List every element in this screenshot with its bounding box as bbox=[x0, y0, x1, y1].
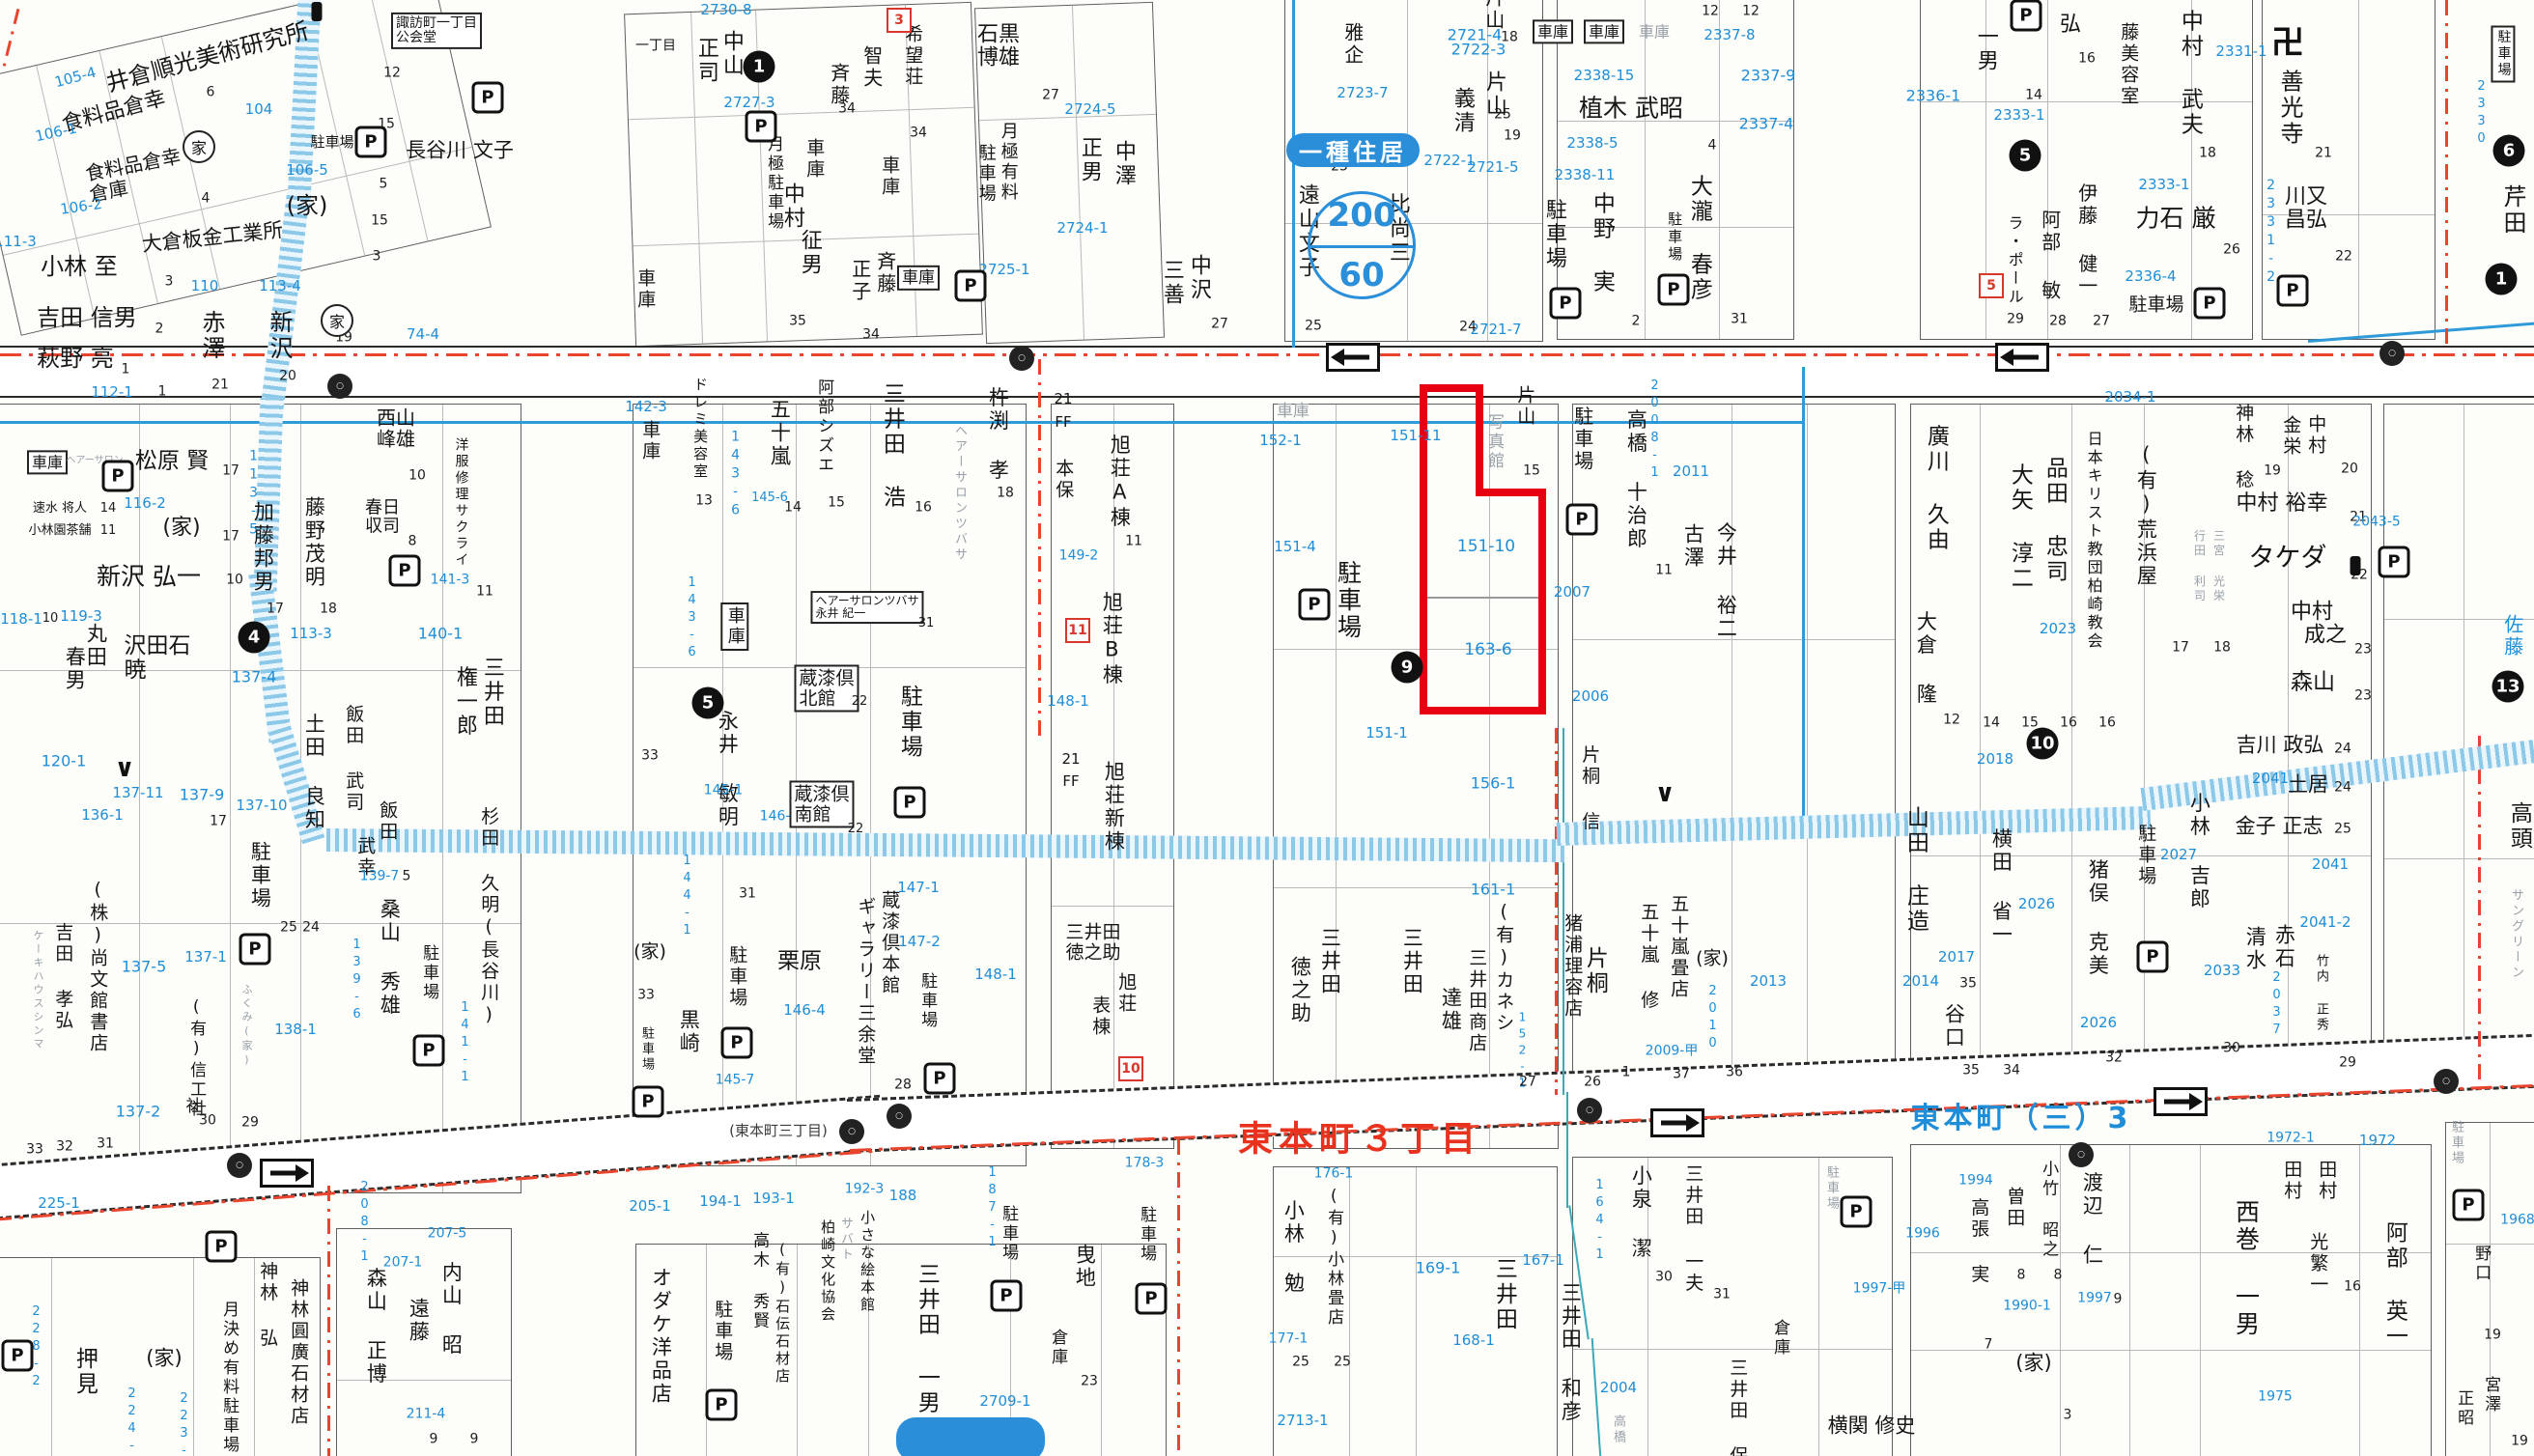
parcel-name: 西巻 一男 bbox=[2234, 1199, 2260, 1338]
lot-number: 2330 bbox=[2474, 79, 2488, 149]
house-number: 11 bbox=[1655, 563, 1673, 577]
lot-number: 2721-7 bbox=[1470, 322, 1521, 337]
lot-number: 2727-3 bbox=[723, 95, 774, 110]
parking-icon: P bbox=[355, 126, 387, 158]
house-number: 15 bbox=[371, 213, 388, 228]
house-number: 12 bbox=[1742, 4, 1760, 18]
parcel-name: 中村 bbox=[2306, 414, 2326, 457]
lot-number: 208-1 bbox=[357, 1180, 371, 1267]
parcel-name: 中野 実 bbox=[1590, 192, 1614, 295]
cadastral-map-canvas[interactable]: 井倉順光美術研究所食料品倉幸6食料品倉幸 倉庫4大倉板金工業所小林 至3吉田 信… bbox=[0, 0, 2534, 1456]
parcel-name: 神林圓廣石材店 bbox=[289, 1278, 309, 1427]
house-number: 10 bbox=[42, 612, 59, 626]
parcel-name: 曳地 bbox=[1074, 1244, 1096, 1290]
lot-number: 1997-甲 bbox=[1853, 1281, 1906, 1296]
lot-number: 2004 bbox=[1600, 1380, 1637, 1395]
lot-number: 2721-4 bbox=[1448, 26, 1503, 42]
house-number: 16 bbox=[2060, 715, 2077, 730]
parcel-name: 加藤邦男 bbox=[252, 501, 274, 594]
lot-number: 143-6 bbox=[685, 575, 698, 662]
house-number: 31 bbox=[1731, 312, 1748, 326]
parcel-line bbox=[337, 1380, 512, 1381]
parcel-name: ラ・ポール bbox=[2006, 215, 2022, 307]
house-number: 30 bbox=[2223, 1041, 2240, 1055]
parcel-name: 三井田 和彦 bbox=[1560, 1282, 1582, 1424]
house-number: 16 bbox=[2078, 51, 2096, 66]
house-number: 13 bbox=[695, 493, 713, 508]
lot-number: 156-1 bbox=[1471, 774, 1516, 791]
house-number: 25 bbox=[1334, 1355, 1351, 1369]
parking-icon: P bbox=[746, 111, 777, 143]
circled-number-icon: 5 bbox=[2010, 140, 2041, 172]
lot-number: 151-1 bbox=[1366, 725, 1408, 741]
boundary-line bbox=[1177, 1139, 1180, 1456]
parcel-name: 車庫 bbox=[1639, 23, 1670, 40]
parcel-name: 21 bbox=[1054, 391, 1072, 406]
parcel-name: 三井田 一男 bbox=[915, 1263, 939, 1416]
parcel-line bbox=[1349, 1167, 1350, 1456]
house-number: 14 bbox=[100, 502, 117, 516]
house-number: 27 bbox=[1519, 1075, 1536, 1089]
parcel-name: 正男 bbox=[1078, 136, 1101, 184]
house-number: 34 bbox=[910, 126, 927, 140]
house-number: 29 bbox=[241, 1115, 259, 1130]
house-number: 14 bbox=[1983, 715, 2000, 730]
parcel-line bbox=[0, 923, 521, 924]
route-marker-icon: ○ bbox=[327, 374, 352, 399]
parcel-line bbox=[2060, 1145, 2061, 1456]
parcel-name: 駐車場 bbox=[976, 144, 995, 205]
lot-number: 138-1 bbox=[274, 1022, 317, 1037]
parcel-name: 表棟 bbox=[1090, 995, 1111, 1038]
parcel-line bbox=[1101, 1245, 1102, 1456]
house-number: 26 bbox=[2223, 242, 2240, 257]
house-number: 21 bbox=[2315, 146, 2332, 160]
parcel-name: ヘアーサロンツバサ 永井 紀一 bbox=[810, 591, 923, 624]
parcel-name: 土田 良知 bbox=[303, 714, 325, 832]
lot-number: 142-3 bbox=[625, 399, 667, 414]
parcel-line bbox=[1274, 649, 1559, 650]
parcel-name: 伊藤 健一 bbox=[2075, 183, 2097, 298]
house-number: 3 bbox=[165, 274, 174, 289]
parcel-name: (有)小林畳店 bbox=[1325, 1187, 1342, 1328]
boundary-line bbox=[3, 9, 20, 68]
parcel-name: 五十嵐 bbox=[769, 399, 791, 468]
street-name: 東本町（三）3 bbox=[1911, 1104, 2132, 1134]
parcel-name: 長谷川 文子 bbox=[406, 140, 514, 162]
lot-number: 211-4 bbox=[407, 1407, 446, 1421]
lot-number: 2041 bbox=[2312, 856, 2349, 872]
lot-number: 2033 bbox=[2204, 963, 2240, 978]
parcel-name: 沢田石 暁 bbox=[125, 634, 191, 683]
parcel-name: 廣川 久由 bbox=[1924, 425, 1948, 553]
house-number: 10 bbox=[408, 468, 426, 483]
house-number: 18 bbox=[2213, 640, 2231, 655]
parcel-name: 中村 成之 bbox=[2291, 601, 2347, 647]
lot-number: 144-1 bbox=[680, 854, 693, 940]
route-marker-icon: ○ bbox=[1577, 1098, 1602, 1123]
house-number: 7 bbox=[1985, 1337, 1993, 1352]
parcel-name: 渡辺 仁 bbox=[2081, 1172, 2103, 1268]
parcel-name: 車庫 bbox=[880, 155, 900, 198]
parcel-name: 車庫 bbox=[27, 450, 68, 474]
parcel-line bbox=[1818, 1158, 1819, 1456]
parcel-name: 三善 bbox=[1160, 259, 1183, 307]
lot-number: 2336-1 bbox=[1906, 87, 1961, 103]
house-number: 11 bbox=[100, 524, 117, 538]
house-number: 8 bbox=[2054, 1268, 2063, 1282]
house-number: 11 bbox=[1125, 534, 1142, 548]
arrow-head bbox=[2189, 1093, 2203, 1110]
lot-number: 137-11 bbox=[112, 785, 163, 800]
house-number: 20 bbox=[279, 369, 296, 383]
lot-number: 2014 bbox=[1902, 973, 1939, 989]
parcel-name: 大矢 淳二 bbox=[2008, 463, 2032, 592]
parcel-name: 竹内 正秀 bbox=[2314, 954, 2327, 1033]
house-number: 12 bbox=[383, 66, 401, 80]
parcel-name: 金子 正志 bbox=[2236, 816, 2323, 838]
house-circle-icon: 家 bbox=[183, 130, 215, 163]
parcel-line bbox=[230, 405, 231, 1193]
lot-number: 136-1 bbox=[81, 807, 124, 823]
lot-number: 151-4 bbox=[1274, 539, 1316, 554]
parcel-name: 萩野 亮 bbox=[37, 347, 114, 372]
parcel-name: 希望荘 bbox=[903, 24, 923, 88]
parcel-name: 押見 bbox=[72, 1347, 97, 1397]
parking-icon: P bbox=[1550, 288, 1582, 320]
parcel-name: 正子 bbox=[849, 259, 870, 303]
house-number: 17 bbox=[2172, 640, 2189, 655]
parcel-name: 藤野茂明 bbox=[303, 496, 325, 589]
parcel-name: 中澤 bbox=[1112, 140, 1135, 188]
lot-number: 148-1 bbox=[974, 966, 1017, 982]
route-marker-icon: ○ bbox=[2379, 341, 2405, 366]
route-marker-icon: ○ bbox=[2069, 1142, 2094, 1167]
lot-number: 2724-1 bbox=[1056, 220, 1108, 236]
street-name: 東本町３丁目 bbox=[1238, 1122, 1481, 1160]
parcel-name: 車庫 bbox=[897, 266, 940, 291]
parcel-name: 遠藤 bbox=[408, 1298, 430, 1344]
house-number: 27 bbox=[1211, 317, 1228, 331]
parcel-name: 品田 忠司 bbox=[2042, 457, 2067, 585]
parcel-name: 月決め有料駐車場 bbox=[220, 1301, 238, 1455]
boundary-line bbox=[327, 1186, 330, 1456]
house-number: 36 bbox=[1726, 1065, 1743, 1079]
house-number: 16 bbox=[915, 500, 932, 515]
parking-icon: P bbox=[472, 82, 504, 114]
parcel-name: 松原 賢 bbox=[135, 450, 209, 474]
house-number: 29 bbox=[2339, 1055, 2356, 1070]
house-number: 5 bbox=[380, 177, 388, 191]
parking-icon: P bbox=[389, 555, 421, 587]
lot-number: 137-5 bbox=[122, 958, 167, 974]
house-number: 9 bbox=[2114, 1292, 2123, 1306]
house-number: 20 bbox=[2341, 462, 2358, 476]
parcel-name: オダケ洋品店 bbox=[650, 1267, 672, 1406]
house-number: 16 bbox=[2344, 1279, 2361, 1294]
one-way-arrow-icon bbox=[1995, 343, 2049, 372]
parcel-name: 清水 bbox=[2244, 926, 2267, 972]
house-number: 34 bbox=[838, 101, 856, 116]
parcel-name: 小林 至 bbox=[41, 255, 118, 280]
parcel-name: 山田 庄造 bbox=[1903, 806, 1928, 935]
house-number: 17 bbox=[222, 529, 239, 544]
parcel-name: 駐車場 bbox=[2136, 824, 2156, 887]
lot-number: 116-2 bbox=[124, 495, 166, 511]
parcel-name: 駐車場 bbox=[2128, 295, 2183, 316]
parking-icon: P bbox=[239, 934, 271, 966]
parcel-name: (家) bbox=[2015, 1353, 2051, 1375]
parcel-name: 大倉 隆 bbox=[1915, 611, 1937, 707]
lot-number: 151-10 bbox=[1457, 538, 1515, 555]
lot-number: 207-1 bbox=[383, 1255, 423, 1270]
parcel-name: 片山 bbox=[1482, 70, 1506, 119]
circled-number-icon: 6 bbox=[2493, 135, 2525, 167]
parcel-name: 旭荘A棟 bbox=[1109, 434, 1131, 530]
parcel-name: 駐車場 bbox=[1571, 406, 1592, 473]
house-number: 26 bbox=[1584, 1075, 1601, 1089]
parcel-name: 権一郎 bbox=[453, 666, 476, 739]
house-number: 19 bbox=[1504, 128, 1521, 143]
parcel-name: (株)尚文館書店 bbox=[88, 879, 108, 1054]
house-number: 10 bbox=[226, 573, 243, 587]
parcel-line bbox=[2129, 1145, 2130, 1456]
parcel-name: 一男 bbox=[1974, 25, 1997, 73]
parking-icon: P bbox=[721, 1027, 753, 1059]
arrow-head bbox=[1686, 1114, 1700, 1132]
parcel-name: 五十嵐 修 bbox=[1639, 903, 1659, 1012]
parcel-name: 森山 正博 bbox=[365, 1268, 387, 1386]
parcel-name: 駐車場 bbox=[2491, 26, 2515, 83]
parcel-name: 吉田 信男 bbox=[37, 306, 137, 331]
house-number: 9 bbox=[470, 1432, 479, 1446]
lot-number: 178-3 bbox=[1125, 1156, 1165, 1170]
red-number-icon: 5 bbox=[1979, 273, 2004, 298]
parcel-name: 小林園茶舗 bbox=[28, 524, 91, 538]
parcel-name: 三井田 bbox=[1492, 1257, 1516, 1332]
parcel-name: 片桐 信 bbox=[1580, 745, 1600, 833]
house-number: 16 bbox=[2098, 715, 2116, 730]
parcel-name: 飯田 bbox=[378, 800, 398, 843]
parcel-name: 片山 bbox=[1515, 385, 1535, 428]
house-number: 25 bbox=[280, 920, 297, 935]
lot-number: 146-4 bbox=[783, 1002, 826, 1018]
parcel-name: 中村 bbox=[780, 182, 803, 231]
house-number: 19 bbox=[2511, 1434, 2528, 1448]
parcel-name: 飯田 武司 bbox=[344, 705, 364, 814]
parcel-name: 三井田 徳之助 bbox=[1065, 922, 1120, 962]
parcel-name: 智夫 bbox=[860, 45, 882, 90]
utility-line bbox=[1423, 597, 1542, 599]
house-number: 23 bbox=[2354, 688, 2372, 703]
house-number: 23 bbox=[1081, 1374, 1098, 1388]
red-number-icon: 10 bbox=[1118, 1056, 1143, 1081]
parcel-name: 旭荘 bbox=[1116, 972, 1137, 1015]
lot-number: 佐藤 bbox=[2501, 614, 2522, 658]
parcel-name: 三井田 bbox=[1401, 927, 1423, 996]
house-circle-icon: 家 bbox=[321, 304, 353, 337]
parcel-name: 車庫 bbox=[640, 420, 661, 462]
parcel-name: 義清 bbox=[1450, 87, 1474, 135]
parcel-name: サングリーン bbox=[2509, 888, 2522, 981]
lot-number: 1968 bbox=[2500, 1213, 2534, 1227]
parcel-name: ギャラリー三余堂 bbox=[856, 897, 876, 1067]
lot-number: 2037 bbox=[2269, 970, 2283, 1040]
parcel-name: 月極有料 bbox=[999, 122, 1017, 203]
parcel-line bbox=[2384, 858, 2534, 859]
parcel-line bbox=[2464, 405, 2464, 1079]
one-way-arrow-icon bbox=[1326, 343, 1380, 372]
parcel-line bbox=[1573, 1349, 1893, 1350]
lot-number: 139-7 bbox=[360, 869, 400, 883]
lot-number: 188 bbox=[889, 1188, 917, 1203]
lot-number: 1975 bbox=[2258, 1389, 2293, 1404]
parcel-name: 古澤 bbox=[1682, 523, 1704, 570]
parking-icon: P bbox=[1566, 504, 1598, 536]
lot-number: 225-1 bbox=[38, 1195, 80, 1211]
zoning-ratio-divider bbox=[1309, 245, 1415, 248]
house-number: 30 bbox=[1655, 1270, 1673, 1284]
lot-number: 143-6 bbox=[727, 430, 742, 521]
parcel-name: 藤美容室 bbox=[2119, 22, 2139, 107]
lot-number: 74-4 bbox=[407, 326, 439, 342]
arrow-head bbox=[1331, 349, 1344, 366]
utility-line bbox=[1292, 0, 1295, 348]
lot-number: 176-1 bbox=[1314, 1166, 1354, 1181]
house-number: 25 bbox=[2334, 822, 2351, 836]
parcel-name: 駐車場 bbox=[1824, 1165, 1838, 1212]
parcel-name: 金栄 bbox=[2281, 415, 2301, 458]
house-number: 6 bbox=[207, 85, 215, 99]
lot-number: 168-1 bbox=[1452, 1332, 1495, 1348]
lot-number: 118-1 bbox=[0, 611, 42, 627]
parking-icon: P bbox=[2, 1340, 34, 1372]
parcel-name: ふくみ(家) bbox=[240, 984, 252, 1069]
parcel-name: 宮澤 bbox=[2482, 1376, 2499, 1414]
parcel-name: FF bbox=[1055, 414, 1071, 430]
house-number: 14 bbox=[784, 500, 802, 515]
house-number: 2 bbox=[155, 322, 164, 336]
parcel-name: 谷口 bbox=[1943, 1003, 1965, 1050]
house-number: 8 bbox=[408, 534, 417, 548]
parking-icon: P bbox=[894, 787, 926, 819]
lot-number: 2023 bbox=[2040, 621, 2076, 636]
parcel-line bbox=[51, 1258, 52, 1456]
parcel-name: 高張 実 bbox=[1969, 1198, 1989, 1286]
house-number: 8 bbox=[2017, 1268, 2026, 1282]
parking-icon: P bbox=[924, 1063, 956, 1095]
lot-number: 2709-1 bbox=[979, 1393, 1030, 1409]
lot-number: 167-1 bbox=[1522, 1252, 1564, 1268]
parcel-name: 駐車場 bbox=[639, 1026, 653, 1073]
parcel-name: 曽田 bbox=[2005, 1187, 2025, 1229]
lot-number: 112-1 bbox=[91, 384, 133, 400]
lot-number: 2338-11 bbox=[1555, 167, 1616, 182]
parcel-name: 三井田 浩 bbox=[880, 382, 904, 511]
lot-number: 104 bbox=[245, 101, 273, 117]
check-mark-icon: ∨ bbox=[1654, 779, 1675, 808]
one-way-arrow-icon bbox=[2154, 1087, 2208, 1116]
lot-number: 193-1 bbox=[752, 1190, 795, 1206]
house-number: 1 bbox=[158, 384, 167, 399]
parcel-name: 車庫 bbox=[1277, 403, 1309, 420]
parcel-line bbox=[37, 66, 97, 320]
lot-number: 147-1 bbox=[897, 880, 940, 895]
house-number: 15 bbox=[828, 495, 845, 510]
parcel-name: 今井 裕二 bbox=[1715, 522, 1737, 641]
one-way-arrow-icon bbox=[260, 1159, 314, 1188]
parcel-name: 駐車場 bbox=[420, 944, 437, 1002]
parcel-name: 駐車場 bbox=[2449, 1120, 2463, 1166]
parcel-name: (家) bbox=[287, 194, 328, 219]
lot-number: 2331-1 bbox=[2215, 43, 2267, 59]
lot-number: 2026 bbox=[2080, 1015, 2117, 1030]
house-number: 4 bbox=[1708, 138, 1717, 153]
parcel-line bbox=[1921, 101, 2253, 102]
parcel-name: 三井田 bbox=[480, 657, 503, 729]
lot-number: 164-1 bbox=[1592, 1178, 1606, 1265]
house-number: 32 bbox=[2105, 1050, 2123, 1065]
parcel-name: 光繁一 bbox=[2308, 1232, 2328, 1296]
parking-icon: P bbox=[633, 1086, 664, 1118]
parking-icon: P bbox=[206, 1231, 238, 1263]
utility-line bbox=[1563, 728, 1564, 1095]
parking-icon: P bbox=[706, 1389, 738, 1421]
parcel-name: 正昭 bbox=[2455, 1389, 2472, 1428]
lot-number: 2333-1 bbox=[1993, 107, 2044, 123]
lot-number: 137-1 bbox=[184, 949, 227, 965]
lot-number: 2011 bbox=[1673, 463, 1709, 479]
parcel-name: 横関 修史 bbox=[1828, 1415, 1916, 1438]
parcel-name: 赤澤 bbox=[198, 310, 223, 362]
lot-number: 2336-4 bbox=[2125, 268, 2176, 284]
parcel-name: 小泉 潔 bbox=[1630, 1165, 1652, 1261]
parcel-name: 片桐 bbox=[1583, 946, 1607, 996]
parcel-line bbox=[1274, 887, 1559, 888]
parking-icon: P bbox=[2137, 941, 2169, 973]
house-number: 24 bbox=[2334, 742, 2351, 756]
lot-number: 2337-9 bbox=[1741, 67, 1796, 83]
house-number: 23 bbox=[2354, 642, 2372, 657]
parcel-name: 車庫 bbox=[1533, 19, 1573, 43]
house-number: 2 bbox=[1632, 314, 1641, 328]
parcel-name: 倉庫 bbox=[1049, 1329, 1066, 1367]
house-number: 1 bbox=[122, 362, 130, 377]
lot-number: 2041 bbox=[2252, 770, 2289, 786]
parcel-name: 柏崎文化協会 bbox=[820, 1219, 835, 1324]
house-number: 17 bbox=[222, 463, 239, 478]
house-number: 19 bbox=[2264, 463, 2281, 478]
zoning-ratio-top: 200 bbox=[1310, 196, 1413, 235]
lot-number: 147-2 bbox=[898, 934, 941, 949]
house-number: 31 bbox=[97, 1136, 114, 1151]
parking-icon: P bbox=[1658, 274, 1690, 306]
boundary-line bbox=[1038, 359, 1041, 736]
house-number: 29 bbox=[2007, 312, 2024, 326]
city-block bbox=[1910, 1144, 2432, 1456]
house-number: 31 bbox=[739, 886, 756, 901]
lot-number: 2721-5 bbox=[1467, 159, 1518, 175]
parcel-name: 西山 峰雄 bbox=[377, 407, 415, 449]
lot-number: 152-1 bbox=[1259, 433, 1302, 448]
parcel-name: 駐車場 bbox=[1667, 211, 1682, 264]
parking-icon: P bbox=[2194, 288, 2226, 320]
lot-number: 2013 bbox=[1750, 973, 1787, 989]
house-number: 35 bbox=[789, 314, 806, 328]
parcel-name: 車庫 bbox=[1584, 19, 1624, 43]
lot-number: 1996 bbox=[1905, 1226, 1940, 1241]
parcel-name: 善光寺 bbox=[2276, 70, 2301, 148]
